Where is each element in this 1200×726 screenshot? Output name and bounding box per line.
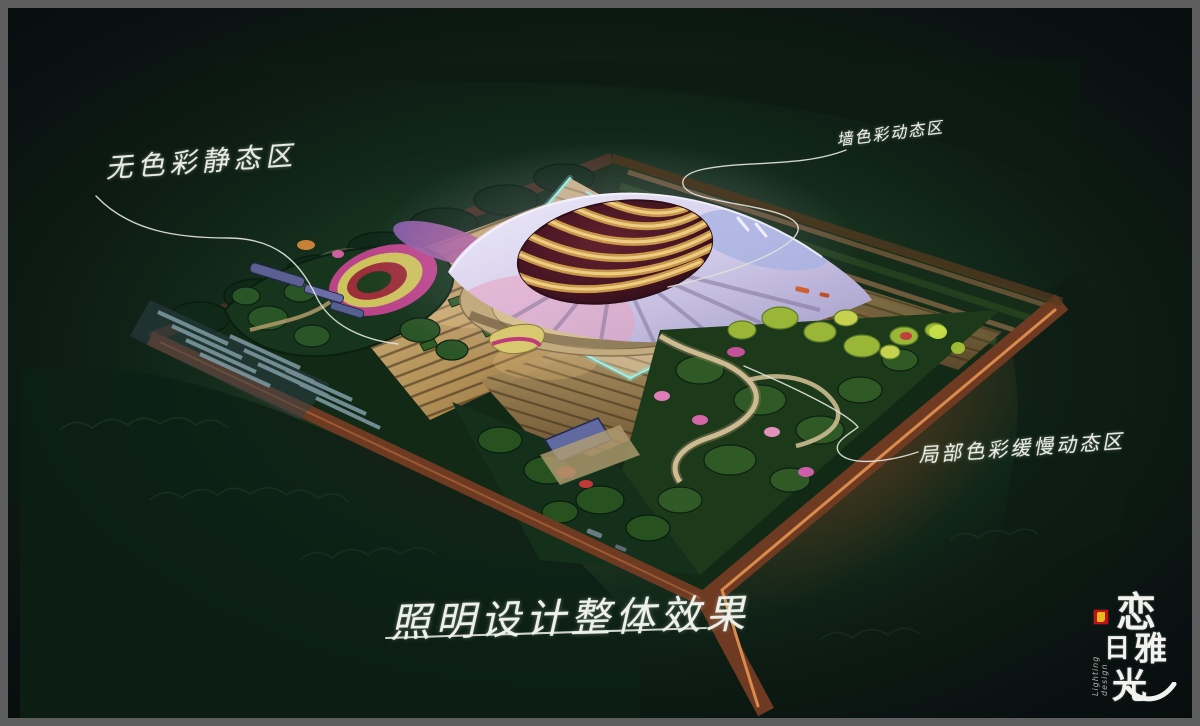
artboard: { "artwork": { "type": "architectural-li… (0, 0, 1200, 726)
seal-mark (1097, 612, 1105, 622)
logo-seal (1094, 610, 1108, 624)
drawing-title: 照明设计整体效果 (389, 581, 750, 648)
logo-swoosh-stroke (1126, 682, 1178, 708)
rendering-canvas: 无色彩静态区 墙色彩动态区 局部色彩缓慢动态区 照明设计整体效果 Lightin… (8, 8, 1192, 718)
studio-logo: Lighting design 恋 日 雅 光 (1086, 586, 1178, 710)
framed-rendering: 无色彩静态区 墙色彩动态区 局部色彩缓慢动态区 照明设计整体效果 Lightin… (0, 0, 1200, 726)
